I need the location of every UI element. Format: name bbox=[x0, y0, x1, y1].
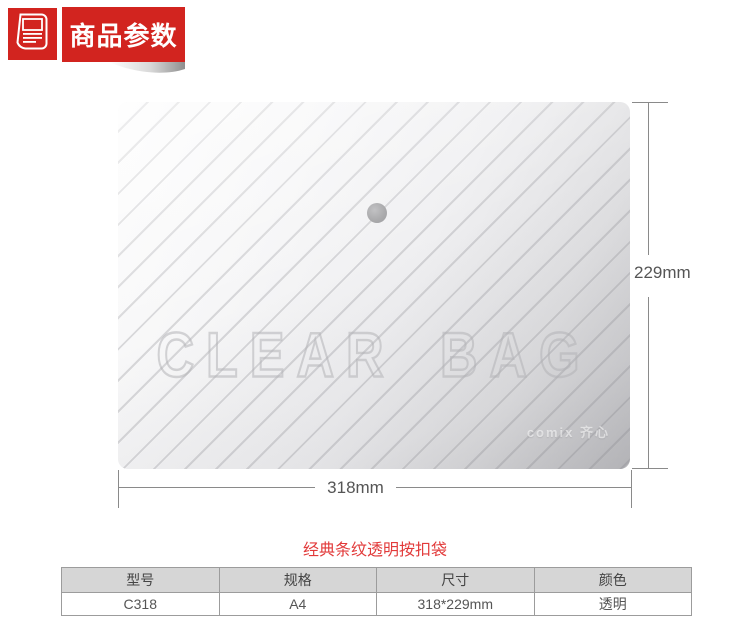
height-dim-upper-segment bbox=[648, 103, 649, 255]
product-params-icon-tile bbox=[8, 8, 57, 60]
bag-watermark-text: CLEAR BAG bbox=[118, 319, 630, 392]
height-dim-top-tick bbox=[632, 102, 668, 103]
spec-header-model: 型号 bbox=[62, 568, 220, 593]
width-dimension-label: 318mm bbox=[315, 478, 396, 498]
height-dim-lower-segment bbox=[648, 297, 649, 468]
spec-header-color: 颜色 bbox=[534, 568, 692, 593]
spec-table: 型号 规格 尺寸 颜色 C318 A4 318*229mm 透明 bbox=[61, 567, 692, 616]
height-dimension-label: 229mm bbox=[634, 263, 691, 283]
section-header-banner: 商品参数 bbox=[62, 7, 185, 62]
spec-table-header-row: 型号 规格 尺寸 颜色 bbox=[62, 568, 692, 593]
bag-sheen-overlay bbox=[118, 102, 630, 469]
width-dim-right-segment bbox=[396, 487, 631, 488]
section-title: 商品参数 bbox=[69, 16, 177, 53]
width-dim-left-tick bbox=[118, 470, 119, 508]
spec-value-model: C318 bbox=[62, 593, 220, 616]
spec-value-color: 透明 bbox=[534, 593, 692, 616]
document-icon bbox=[16, 13, 49, 56]
banner-fold-decoration bbox=[109, 62, 185, 79]
product-caption: 经典条纹透明按扣袋 bbox=[0, 536, 750, 560]
width-dim-left-segment bbox=[119, 487, 315, 488]
spec-value-size: 318*229mm bbox=[377, 593, 535, 616]
snap-button bbox=[367, 203, 387, 223]
spec-table-data-row: C318 A4 318*229mm 透明 bbox=[62, 593, 692, 616]
spec-header-size: 尺寸 bbox=[377, 568, 535, 593]
spec-value-spec: A4 bbox=[219, 593, 377, 616]
width-dim-right-tick bbox=[631, 470, 632, 508]
bag-brand-mark: comix 齐心 bbox=[527, 422, 610, 441]
spec-header-spec: 规格 bbox=[219, 568, 377, 593]
product-image-clear-bag: CLEAR BAG comix 齐心 bbox=[118, 102, 630, 469]
height-dim-bottom-tick bbox=[632, 468, 668, 469]
